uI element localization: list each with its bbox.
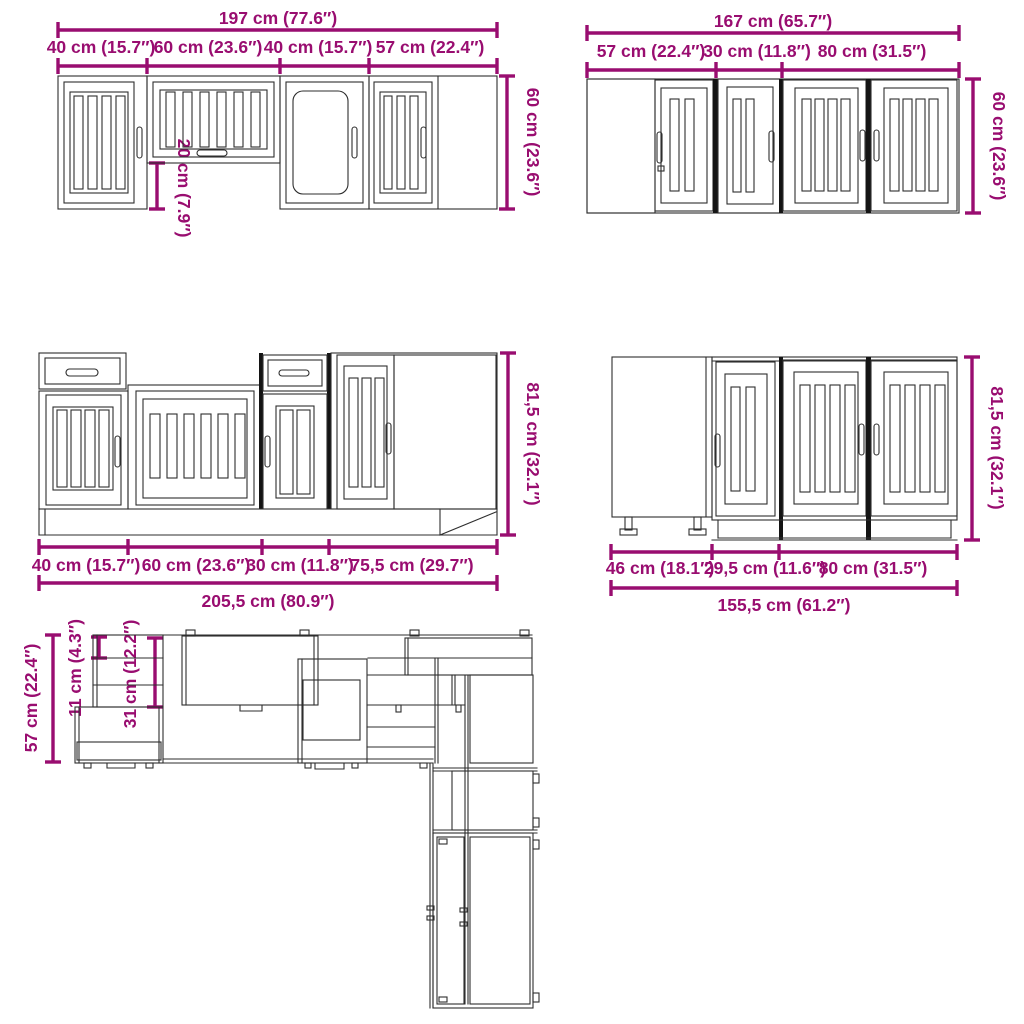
door-handle bbox=[137, 127, 142, 158]
dim-total-base-left: 205,5 cm (80.9″) bbox=[202, 591, 335, 611]
dim-section-1: 40 cm (15.7″) bbox=[47, 37, 156, 57]
foot bbox=[146, 763, 153, 768]
cabinet-gap bbox=[713, 79, 718, 213]
tall-door bbox=[470, 837, 530, 1004]
drawing-wall-right bbox=[587, 79, 959, 213]
door-handle bbox=[860, 130, 865, 161]
kitchen-dimension-diagram: 197 cm (77.6″) 40 cm (15.7″) 60 cm (23.6… bbox=[0, 0, 1024, 1024]
drawer-handle bbox=[66, 369, 98, 376]
cabinet-gap bbox=[866, 79, 871, 213]
dimensions-base-left: 81,5 cm (32.1″) 40 cm (15.7″) 60 cm (23.… bbox=[32, 353, 543, 611]
door-handle bbox=[352, 127, 357, 158]
cabinet-gap bbox=[327, 353, 331, 509]
view-plan-l-shape: 57 cm (22.4″) 11 cm (4.3″) 31 cm (12.2″) bbox=[21, 619, 539, 1008]
dim-back-gap: 11 cm (4.3″) bbox=[65, 619, 85, 717]
drawing-base-right bbox=[612, 357, 957, 540]
dim-section-3: 80 cm (31.5″) bbox=[818, 41, 927, 61]
dim-section-3: 80 cm (31.5″) bbox=[819, 558, 928, 578]
cabinet-gap bbox=[866, 357, 871, 540]
drawer-handle bbox=[279, 370, 309, 376]
adjustable-foot bbox=[625, 517, 632, 530]
hinge-tab bbox=[533, 774, 539, 783]
dim-section-2: 30 cm (11.8″) bbox=[703, 41, 811, 61]
dim-section-1: 40 cm (15.7″) bbox=[32, 555, 141, 575]
view-base-cabinets-right: 81,5 cm (32.1″) 46 cm (18.1″) 29,5 cm (1… bbox=[606, 357, 1007, 615]
handle-notch bbox=[240, 705, 262, 711]
drawing-wall-left bbox=[58, 76, 497, 209]
foot bbox=[305, 763, 311, 768]
dim-height-wall-right: 60 cm (23.6″) bbox=[989, 92, 1009, 201]
side-panel bbox=[587, 79, 655, 213]
dimensions-wall-right: 167 cm (65.7″) 57 cm (22.4″) 30 cm (11.8… bbox=[587, 11, 1009, 213]
drawing-base-left bbox=[39, 353, 497, 535]
cabinet-gap bbox=[779, 79, 783, 213]
door-handle bbox=[874, 424, 879, 455]
door-handle bbox=[265, 436, 270, 467]
glass-panel bbox=[293, 91, 348, 194]
handle-notch bbox=[107, 763, 135, 768]
drawer-front bbox=[77, 742, 161, 760]
view-base-cabinets-left: 81,5 cm (32.1″) 40 cm (15.7″) 60 cm (23.… bbox=[32, 353, 543, 611]
hinge-bracket bbox=[439, 997, 447, 1002]
hinge-tab bbox=[396, 705, 401, 712]
dim-height-base-left: 81,5 cm (32.1″) bbox=[523, 382, 543, 505]
dim-section-1: 57 cm (22.4″) bbox=[597, 41, 706, 61]
hinge-bracket bbox=[439, 839, 447, 844]
dim-section-2: 60 cm (23.6″) bbox=[154, 37, 263, 57]
dim-section-3: 30 cm (11.8″) bbox=[246, 555, 354, 575]
dim-total-wall-right: 167 cm (65.7″) bbox=[714, 11, 832, 31]
foot bbox=[84, 763, 91, 768]
dim-section-2: 29,5 cm (11.6″) bbox=[704, 558, 826, 578]
dim-total-wall-left: 197 cm (77.6″) bbox=[219, 8, 337, 28]
dim-wall-cabinet-depth: 31 cm (12.2″) bbox=[120, 620, 140, 729]
handle-notch bbox=[315, 763, 344, 769]
dim-section-2: 60 cm (23.6″) bbox=[142, 555, 251, 575]
drawer-handle bbox=[197, 150, 227, 156]
door-handle bbox=[421, 127, 426, 158]
adjustable-foot bbox=[694, 517, 701, 530]
dim-height-base-right: 81,5 cm (32.1″) bbox=[987, 386, 1007, 509]
hinge-tab bbox=[533, 993, 539, 1002]
dim-total-base-right: 155,5 cm (61.2″) bbox=[718, 595, 851, 615]
hinge-tab bbox=[533, 818, 539, 827]
view-wall-cabinets-left: 197 cm (77.6″) 40 cm (15.7″) 60 cm (23.6… bbox=[47, 8, 543, 237]
tall-door bbox=[437, 837, 464, 1004]
drawing-plan bbox=[75, 630, 539, 1008]
dim-counter-depth: 57 cm (22.4″) bbox=[21, 644, 41, 753]
side-panel bbox=[612, 357, 712, 517]
foot bbox=[420, 763, 427, 768]
door-handle bbox=[859, 424, 864, 455]
cabinet-gap bbox=[259, 353, 263, 509]
foot bbox=[352, 763, 358, 768]
door-handle bbox=[874, 130, 879, 161]
dim-section-3: 40 cm (15.7″) bbox=[264, 37, 373, 57]
cabinet-gap bbox=[779, 357, 783, 540]
hinge-tab bbox=[456, 705, 461, 712]
corner-panel bbox=[394, 355, 496, 509]
door-handle bbox=[115, 436, 120, 467]
dim-height-wall-left: 60 cm (23.6″) bbox=[523, 88, 543, 197]
dim-hood-gap: 20 cm (7.9″) bbox=[174, 139, 194, 238]
view-wall-cabinets-right: 167 cm (65.7″) 57 cm (22.4″) 30 cm (11.8… bbox=[587, 11, 1009, 213]
dim-section-4: 57 cm (22.4″) bbox=[376, 37, 485, 57]
dim-section-1: 46 cm (18.1″) bbox=[606, 558, 715, 578]
corner-cabinet bbox=[470, 675, 533, 763]
dim-section-4: 75,5 cm (29.7″) bbox=[350, 555, 473, 575]
diagram-canvas: 197 cm (77.6″) 40 cm (15.7″) 60 cm (23.6… bbox=[0, 0, 1024, 1024]
dimensions-base-right: 81,5 cm (32.1″) 46 cm (18.1″) 29,5 cm (1… bbox=[606, 357, 1007, 615]
dimensions-plan: 57 cm (22.4″) 11 cm (4.3″) 31 cm (12.2″) bbox=[21, 619, 163, 762]
hinge-tab bbox=[533, 840, 539, 849]
